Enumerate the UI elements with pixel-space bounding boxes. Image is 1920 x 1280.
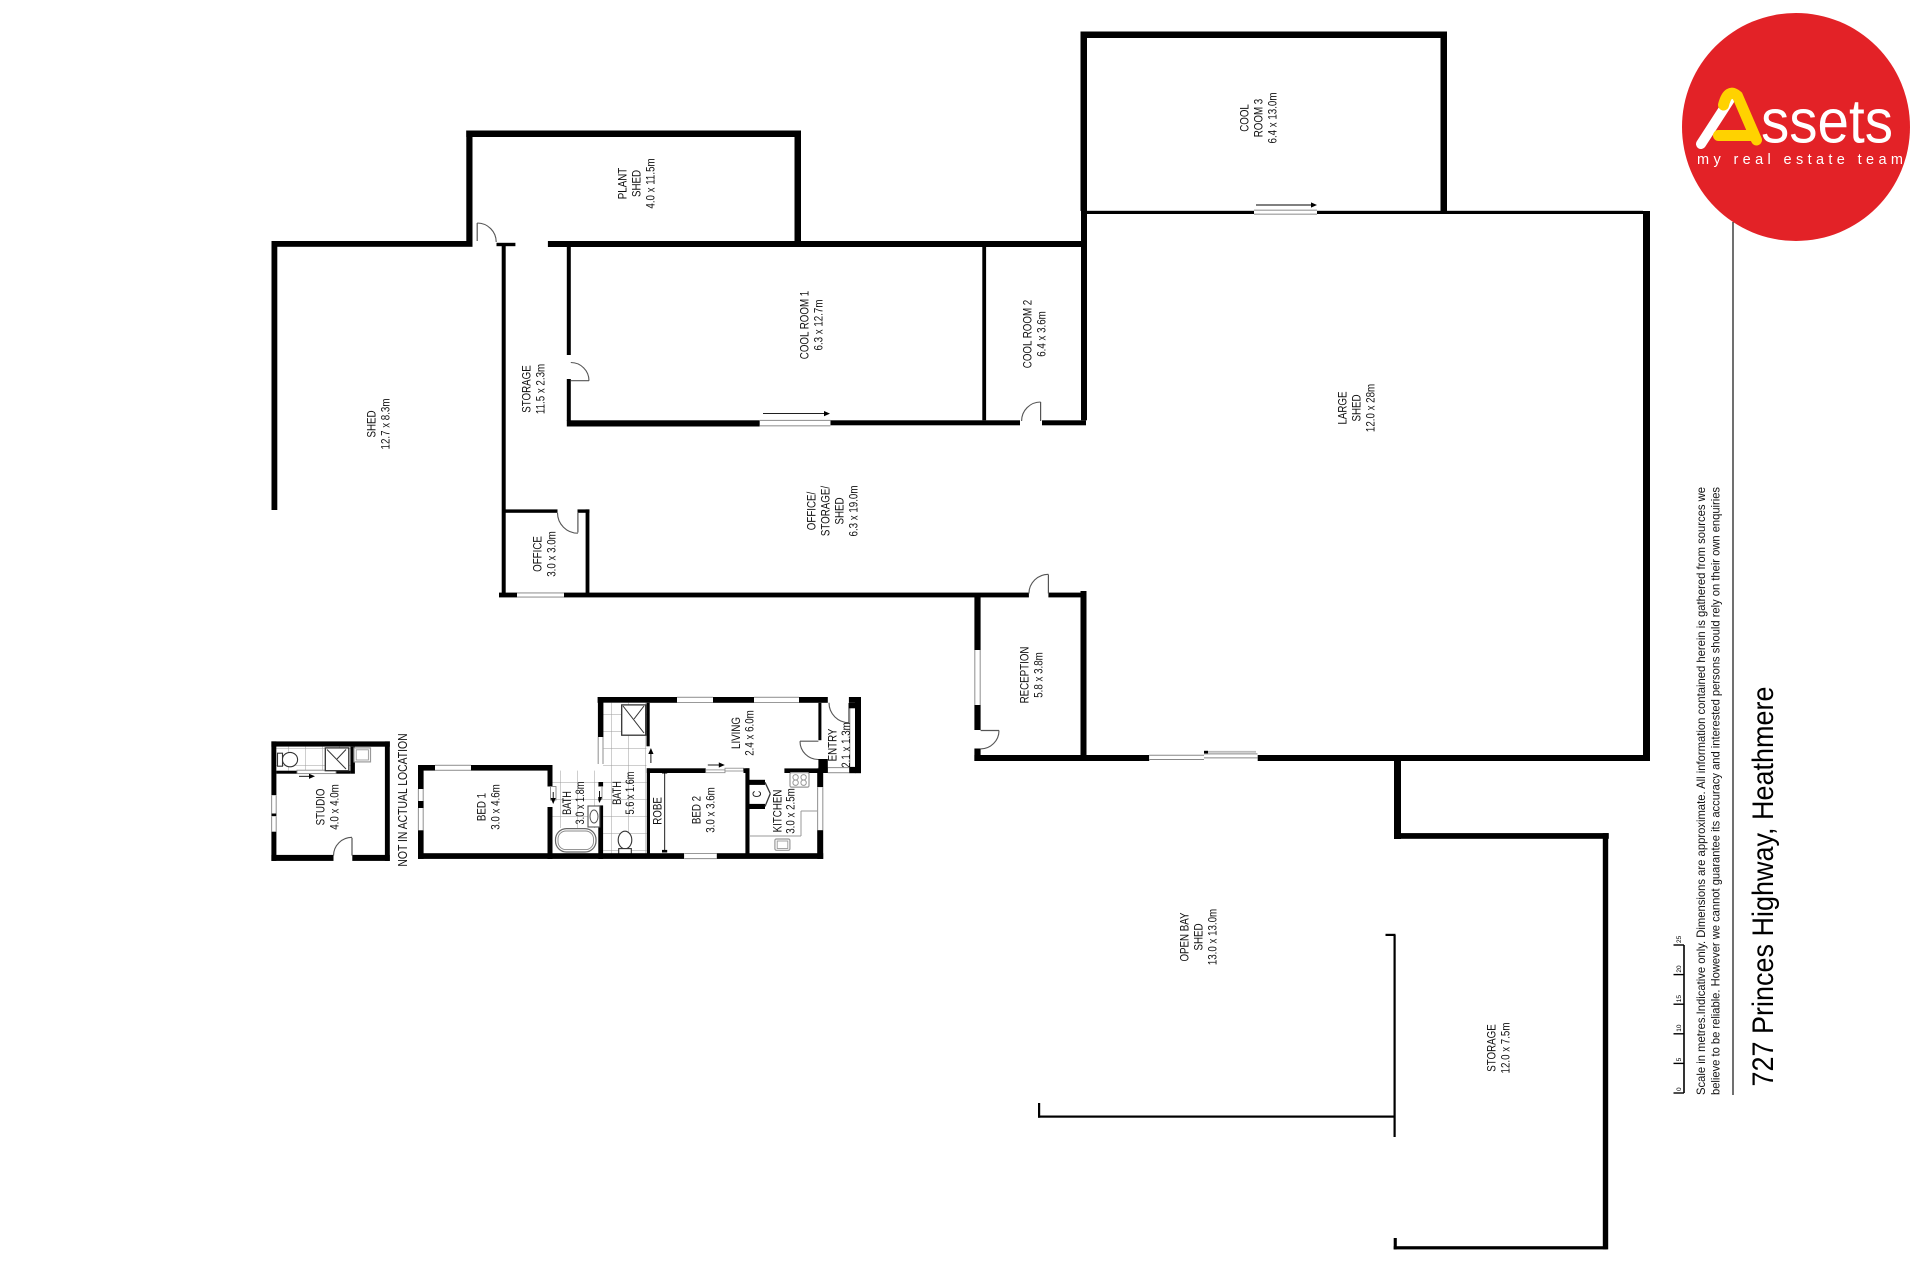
svg-text:12.0 x 7.5m: 12.0 x 7.5m [1499,1023,1512,1074]
svg-text:STUDIO: STUDIO [314,788,327,825]
svg-text:ROBE: ROBE [651,797,664,825]
svg-text:BATH: BATH [562,791,574,815]
svg-text:OFFICE/: OFFICE/ [805,491,818,530]
svg-text:25: 25 [1676,935,1683,943]
svg-text:COOL: COOL [1238,104,1251,132]
svg-text:6.4 x 3.6m: 6.4 x 3.6m [1035,311,1048,357]
svg-text:3.0 x 1.8m: 3.0 x 1.8m [575,782,587,825]
svg-text:C: C [752,790,764,797]
svg-text:5.6 x 1.6m: 5.6 x 1.6m [625,772,637,815]
svg-text:SHED: SHED [1350,394,1363,421]
svg-text:OPEN BAY: OPEN BAY [1178,912,1191,962]
svg-text:13.0 x 13.0m: 13.0 x 13.0m [1206,909,1219,965]
svg-text:LARGE: LARGE [1336,391,1349,424]
svg-text:4.0 x 11.5m: 4.0 x 11.5m [644,158,657,208]
svg-text:BED 1: BED 1 [475,793,488,821]
svg-text:3.0 x 4.6m: 3.0 x 4.6m [489,784,502,830]
svg-text:LIVING: LIVING [730,717,743,749]
svg-text:SHED: SHED [630,170,643,197]
svg-text:2.1 x 1.3m: 2.1 x 1.3m [840,722,853,768]
svg-text:KITCHEN: KITCHEN [771,790,784,833]
svg-text:believe to be reliable. Howeve: believe to be reliable. However we canno… [1709,487,1723,1095]
svg-text:3.0 x 2.5m: 3.0 x 2.5m [784,788,797,834]
svg-text:0: 0 [1676,1087,1683,1091]
svg-text:OFFICE: OFFICE [531,536,544,572]
svg-text:ENTRY: ENTRY [826,728,839,761]
svg-text:NOT IN ACTUAL LOCATION: NOT IN ACTUAL LOCATION [396,733,410,866]
svg-text:6.3 x 19.0m: 6.3 x 19.0m [847,486,860,537]
svg-text:SHED: SHED [833,497,846,524]
svg-text:BATH: BATH [612,781,624,805]
svg-text:20: 20 [1676,965,1683,973]
svg-text:SHED: SHED [1192,923,1205,950]
svg-text:ssets: ssets [1761,88,1893,157]
svg-text:4.0 x 4.0m: 4.0 x 4.0m [328,784,341,830]
svg-text:ROOM 3: ROOM 3 [1252,99,1265,137]
svg-text:SHED: SHED [365,410,378,437]
svg-text:6.3 x 12.7m: 6.3 x 12.7m [812,300,825,351]
svg-text:2.4 x 6.0m: 2.4 x 6.0m [743,710,756,756]
svg-text:5: 5 [1676,1057,1683,1061]
svg-text:15: 15 [1676,995,1683,1003]
svg-text:STORAGE: STORAGE [1485,1024,1498,1071]
svg-text:my real estate team: my real estate team [1697,152,1903,168]
svg-text:COOL ROOM 1: COOL ROOM 1 [798,291,811,359]
svg-text:STORAGE: STORAGE [520,365,533,412]
svg-text:COOL ROOM 2: COOL ROOM 2 [1021,300,1034,368]
svg-text:6.4 x 13.0m: 6.4 x 13.0m [1266,93,1279,144]
svg-text:BED 2: BED 2 [690,796,703,824]
svg-text:3.0 x 3.0m: 3.0 x 3.0m [545,531,558,577]
svg-text:12.0 x 28m: 12.0 x 28m [1364,384,1377,432]
svg-text:12.7 x 8.3m: 12.7 x 8.3m [379,399,392,450]
svg-text:PLANT: PLANT [616,168,629,200]
svg-text:STORAGE/: STORAGE/ [819,485,832,536]
svg-text:RECEPTION: RECEPTION [1018,647,1031,704]
svg-text:3.0 x 3.6m: 3.0 x 3.6m [704,787,717,833]
svg-text:727 Princes Highway, Heathmere: 727 Princes Highway, Heathmere [1747,687,1780,1087]
svg-text:Scale in metres.Indicative onl: Scale in metres.Indicative only. Dimensi… [1694,487,1708,1095]
svg-text:5.8 x 3.8m: 5.8 x 3.8m [1032,652,1045,698]
svg-text:10: 10 [1676,1024,1683,1032]
svg-text:11.5 x 2.3m: 11.5 x 2.3m [534,364,547,414]
